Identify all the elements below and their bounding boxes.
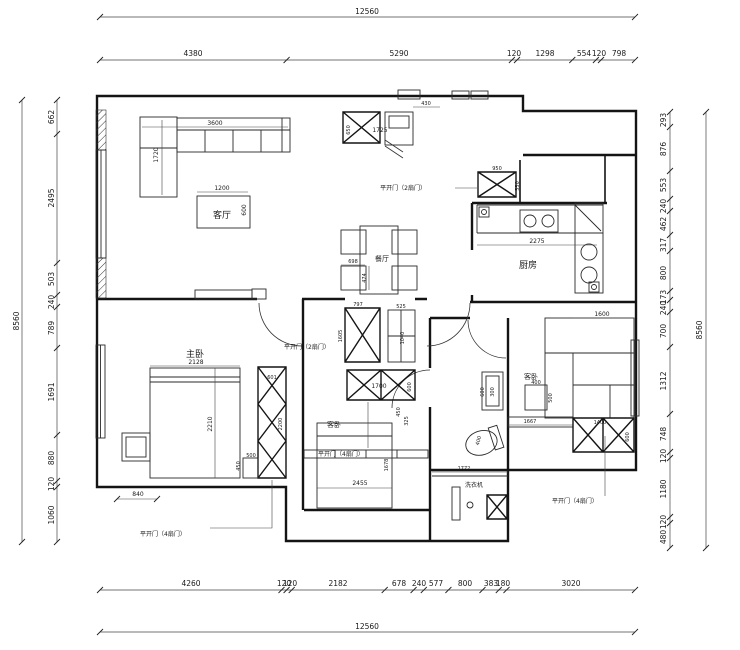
fdim: 1200 [214, 185, 229, 192]
dim-label: 12560 [355, 7, 379, 16]
fdim: 2275 [529, 238, 544, 245]
dim-label: 1312 [659, 371, 668, 390]
entry-shoe-cabinet-inner [389, 116, 409, 128]
dim-label: 1180 [659, 479, 668, 498]
dim-label: 554 [577, 49, 592, 58]
fdim: 1772 [458, 466, 471, 472]
fdim: 474 [362, 273, 368, 283]
door-arc-hall [427, 303, 470, 346]
dim-label: 8560 [695, 320, 704, 339]
dim-label: 240 [659, 301, 668, 316]
fdim: 3600 [207, 120, 222, 127]
fdim: 600 [480, 387, 486, 397]
dim-label: 2495 [47, 188, 56, 207]
dim-label: 678 [392, 579, 407, 588]
stove [520, 210, 558, 232]
fdim: 2128 [188, 359, 203, 366]
dining-chair [392, 266, 417, 290]
fdim: 600 [241, 204, 248, 216]
dim-label: 800 [458, 579, 473, 588]
fdim: 650 [346, 125, 352, 135]
gas-valve-box [479, 207, 489, 217]
master-cabinet [243, 458, 258, 478]
fdim: 1605 [338, 330, 344, 343]
dim-label: 1060 [47, 505, 56, 524]
dim-label: 2182 [328, 579, 347, 588]
fdim: 1600 [594, 311, 609, 318]
walls [97, 96, 636, 541]
dim-label: 3020 [561, 579, 580, 588]
dim-label: 4260 [181, 579, 200, 588]
dining-chair [341, 230, 366, 254]
fdim: 2210 [207, 416, 214, 431]
dim-label: 748 [659, 427, 668, 442]
toilet [463, 425, 505, 459]
fdim: 600 [625, 432, 631, 442]
wall-corridor-left [303, 299, 430, 510]
sofa-main [177, 118, 290, 152]
wall-bathroom-left [430, 318, 470, 541]
dim-label: 293 [659, 113, 668, 128]
platform-grid [545, 353, 634, 418]
wall-kitchen-nook [520, 155, 605, 203]
fdim: 450 [236, 461, 242, 471]
door-note: 平开门（4扇门） [552, 497, 598, 505]
fdim: 950 [492, 166, 502, 172]
door-arc-bathroom [468, 320, 506, 358]
dim-label: 8560 [12, 311, 21, 330]
fdim: 1725 [372, 127, 387, 134]
side-table [525, 385, 547, 410]
dim-label: 577 [429, 579, 444, 588]
dim-label: 180 [496, 579, 511, 588]
tv-unit [252, 289, 266, 299]
door-arc-master [259, 303, 302, 346]
dim-label: 462 [659, 217, 668, 232]
dining-chair [392, 230, 417, 254]
dim-label: 5290 [389, 49, 408, 58]
fdim: 430 [421, 101, 431, 107]
laundry-cabinet [452, 487, 460, 520]
wall-bathroom-right [430, 318, 508, 470]
fdim: 500 [548, 393, 554, 403]
fdim: 1720 [153, 147, 160, 162]
dim-label: 1298 [535, 49, 554, 58]
floor-drain [467, 502, 473, 508]
dim-label: 120 [283, 579, 298, 588]
room-label-living: 客厅 [213, 209, 231, 221]
dim-label: 798 [612, 49, 627, 58]
dim-label: 240 [412, 579, 427, 588]
fdim: 2200 [278, 418, 284, 431]
fdim: 450 [396, 407, 402, 417]
gas-valve [482, 210, 487, 215]
door-entry-leaf [385, 140, 403, 158]
tv-bench [195, 290, 252, 299]
fdim: 797 [353, 302, 363, 308]
sofa-cushions [177, 118, 290, 152]
dim-label: 240 [47, 295, 56, 310]
dim-label: 240 [659, 199, 668, 214]
room-label-dining: 餐厅 [375, 254, 389, 263]
washing-machine [487, 495, 507, 519]
fdim: 525 [396, 304, 406, 310]
fdim: 1700 [371, 383, 386, 390]
right-bed-platform [545, 318, 634, 418]
dim-label: 553 [659, 178, 668, 193]
room-label-guest-center: 客卧 [327, 420, 341, 429]
dim-label: 662 [47, 110, 56, 125]
outer-wall [97, 96, 636, 541]
dim-label: 120 [659, 449, 668, 464]
door-note: 平开门（2扇门） [284, 343, 330, 351]
dim-label: 120 [47, 477, 56, 492]
dim-label: 503 [47, 272, 56, 287]
fdim: 1678 [384, 459, 390, 472]
drain [592, 285, 597, 290]
floor-plan-page: 12560 4380 5290 120 1298 554 120 798 426… [0, 0, 740, 650]
hall-cabinet-x [345, 308, 380, 362]
fdim: 600 [407, 382, 413, 392]
dim-label: 800 [659, 266, 668, 281]
label-washing-machine: 洗衣机 [465, 481, 483, 489]
fdim: 500 [246, 453, 256, 459]
dim-label: 700 [659, 324, 668, 339]
fdim: 840 [132, 491, 144, 498]
fdim: 601 [267, 375, 277, 381]
fdim: 300 [490, 387, 496, 397]
kitchen-counter [477, 205, 603, 233]
sink-basin [581, 267, 597, 283]
dim-label: 317 [659, 238, 668, 253]
dim-label: 1691 [47, 382, 56, 401]
dim-label: 120 [659, 515, 668, 530]
door-note: 平开门（4扇门） [140, 530, 186, 538]
drain-box [589, 282, 599, 292]
dim-label: 120 [592, 49, 607, 58]
dim-label: 876 [659, 142, 668, 157]
dim-label: 880 [47, 451, 56, 466]
fdim: 1040 [400, 332, 406, 345]
sink-basin [581, 244, 597, 260]
leaders [210, 188, 605, 528]
corner-unit [575, 203, 603, 233]
dim-label: 12560 [355, 622, 379, 631]
fdim: 1667 [524, 419, 537, 425]
dim-label: 789 [47, 321, 56, 336]
fdim: 400 [531, 380, 541, 386]
window-top [398, 90, 420, 99]
nightstand-inner [126, 437, 146, 457]
hatched-wall [96, 258, 106, 298]
door-note: 平开门（4扇门） [318, 450, 364, 458]
fdim: 698 [348, 259, 358, 265]
dim-label: 120 [507, 49, 522, 58]
master-bed-pillows [150, 377, 240, 382]
door-note: 平开门（2扇门） [380, 184, 426, 192]
hatched-wall [96, 110, 106, 150]
fdim: 400 [475, 435, 483, 446]
kitchen-cabinet-x [478, 172, 516, 197]
dim-label: 480 [659, 530, 668, 545]
burner [524, 215, 536, 227]
fdim: 325 [404, 416, 410, 426]
fdim: 2455 [352, 480, 367, 487]
burner [542, 215, 554, 227]
room-label-kitchen: 厨房 [519, 259, 537, 271]
dim-label: 4380 [183, 49, 202, 58]
bench [508, 417, 573, 427]
fdim: 550 [515, 181, 521, 191]
fdim: 1400 [594, 420, 607, 426]
master-bed [150, 368, 240, 478]
floor-plan-canvas: 12560 4380 5290 120 1298 554 120 798 426… [0, 0, 740, 650]
